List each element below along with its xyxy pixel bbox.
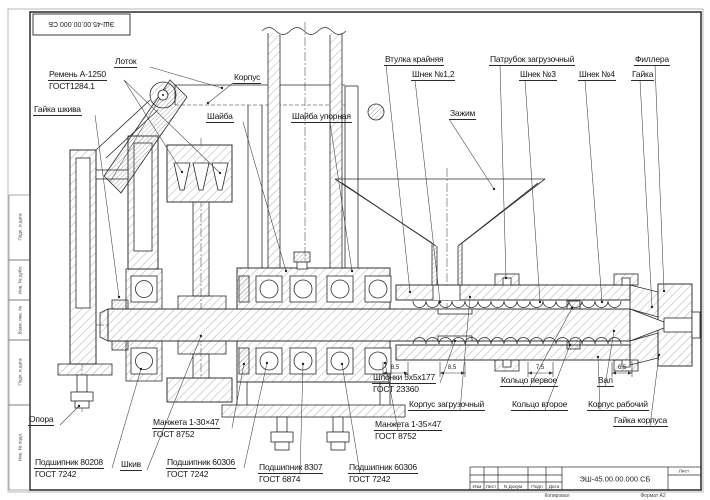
tb-col: Изм — [473, 484, 482, 490]
callout-fillera: Филлера — [634, 54, 670, 66]
tb-col: Дата — [549, 484, 560, 490]
callout-shayba-upornaya: Шайба упорная — [291, 111, 352, 123]
shaft-nut — [112, 300, 128, 309]
callout-zazhim: Зажим — [449, 108, 476, 120]
seal — [239, 276, 249, 302]
callout-korpus-rabochiy: Корпус рабочий — [587, 399, 649, 411]
side-strip-label: Инв. № подл. — [18, 433, 23, 462]
key — [438, 309, 472, 314]
callout-shayba: Шайба — [206, 111, 234, 123]
ring — [567, 301, 580, 309]
corner-stamp: ЭШ-45.00.00.000 СБ — [33, 14, 130, 35]
callout-lotok: Лоток — [114, 56, 137, 68]
die-outlet — [664, 318, 692, 332]
callout-shnek-4: Шнек №4 — [578, 69, 616, 81]
screw-flights-top — [413, 301, 621, 308]
mounting-bolts — [271, 417, 349, 450]
tb-col: Подп — [531, 484, 543, 490]
callout-shnek-12: Шнек №1,2 — [411, 69, 455, 81]
pulley — [167, 145, 232, 402]
callout-manzheta-30: Манжета 1-30×47ГОСТ 8752 — [152, 417, 220, 439]
side-strip-label: Подп. и дата — [18, 213, 23, 241]
title-block: Изм Лист N Докум Подп Дата Лист ЭШ-45.00… — [470, 467, 701, 499]
callout-manzheta-35: Манжета 1-35×47ГОСТ 8752 — [374, 419, 442, 441]
callout-koltso-pervoe: Кольцо первое — [500, 375, 558, 387]
drawing-sheet: Подп. и дата Инв. № дубл. Взам. инв. № П… — [0, 0, 710, 500]
stud-section — [368, 104, 384, 120]
dim-text: 7,5 — [536, 365, 545, 371]
callout-opora: Опора — [28, 414, 54, 426]
frame — [8, 9, 703, 492]
callout-val: Вал — [597, 375, 614, 387]
callout-gayka-korpusa: Гайка корпуса — [613, 415, 668, 427]
callout-korpus: Корпус — [233, 72, 261, 84]
tb-doc-number: ЭШ-45.00.00.000 СБ — [580, 475, 651, 484]
dim-text: 8,5 — [448, 365, 457, 371]
tb-col: Лист — [486, 484, 497, 490]
dim-text: 6,5 — [618, 365, 627, 371]
callout-podshipnik-8307: Подшипник 8307ГОСТ 6874 — [258, 462, 323, 484]
callout-patrubok: Патрубок загрузочный — [489, 54, 575, 66]
side-strip-label: Взам. инв. № — [18, 306, 23, 335]
die-assembly — [630, 284, 700, 366]
callout-shkiv: Шкив — [120, 459, 142, 471]
side-strip-labels: Подп. и дата Инв. № дубл. Взам. инв. № П… — [18, 213, 23, 461]
callout-vtulka-kraynyaya: Втулка крайняя — [384, 54, 444, 66]
callout-podshipnik-80208: Подшипник 80208ГОСТ 7242 — [34, 457, 104, 479]
side-strip-label: Подп. и дата — [18, 358, 23, 386]
callout-podshipnik-60306-1: Подшипник 60306ГОСТ 7242 — [166, 457, 236, 479]
callout-gayka-shkiva: Гайка шкива — [33, 104, 82, 116]
tb-col: N Докум — [504, 484, 523, 490]
callout-koltso-vtoroe: Кольцо второе — [511, 399, 568, 411]
tb-sheet-cell: Лист — [679, 469, 690, 475]
callout-korpus-zagruzochny: Корпус загрузочный — [408, 399, 485, 411]
dim-text: 8,5 — [391, 365, 400, 371]
shaft-nut — [112, 341, 128, 350]
callout-shnek-3: Шнек №3 — [519, 69, 557, 81]
side-strip-label: Инв. № дубл. — [18, 266, 23, 294]
tb-format: Формат А2 — [640, 493, 665, 499]
callout-podshipnik-60306-2: Подшипник 60306ГОСТ 7242 — [348, 462, 418, 484]
tb-copied: Копировал — [544, 493, 569, 499]
callout-shponki: Шпонки 5х5х177ГОСТ 23360 — [372, 372, 436, 394]
seal — [239, 348, 249, 374]
corner-stamp-text: ЭШ-45.00.00.000 СБ — [48, 20, 115, 27]
callout-gayka: Гайка — [631, 69, 654, 81]
callout-remen: Ремень А-1250ГОСТ1284.1 — [48, 69, 107, 91]
